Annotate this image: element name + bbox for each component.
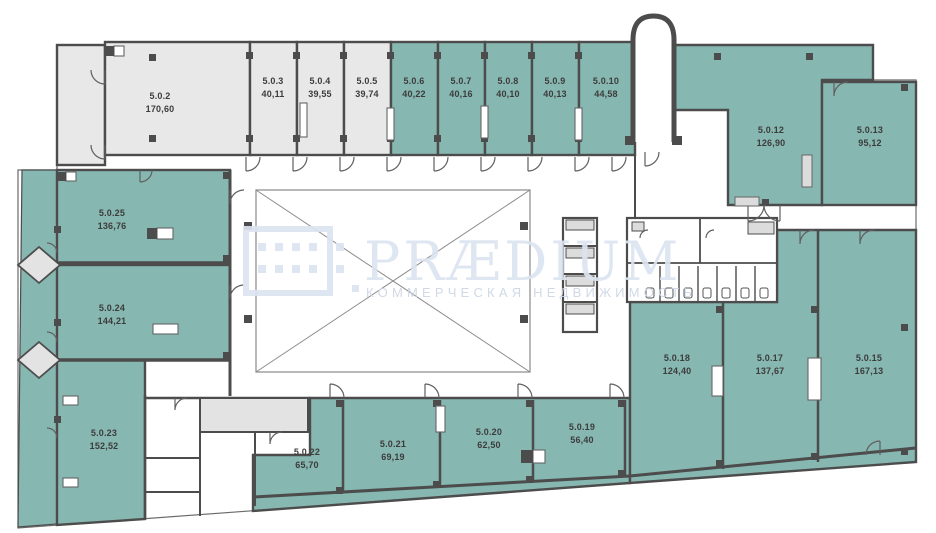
room-region-5.0.2[interactable]	[105, 42, 250, 155]
floor-plan-page: 5.0.2170,605.0.340,115.0.439,555.0.539,7…	[0, 0, 936, 533]
core-room	[200, 398, 308, 432]
room-region-5.0.25[interactable]	[57, 170, 230, 265]
floor-plan: 5.0.2170,605.0.340,115.0.439,555.0.539,7…	[0, 0, 936, 533]
room-region-annex[interactable]	[57, 45, 105, 165]
room-region-5.0.24[interactable]	[57, 265, 230, 360]
watermark-tagline: КОММЕРЧЕСКАЯ НЕДВИЖИМОСТЬ	[366, 285, 696, 300]
stair-tower	[625, 16, 682, 145]
watermark-brand: PRÆDIUM	[364, 230, 681, 293]
